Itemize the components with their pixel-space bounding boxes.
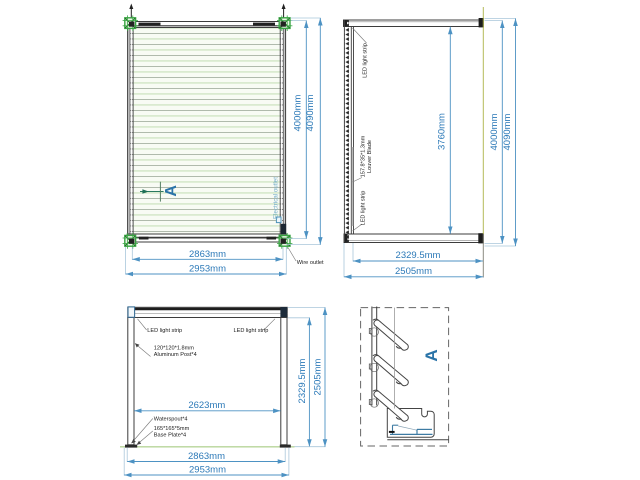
svg-text:2329.5mm: 2329.5mm	[396, 250, 441, 261]
svg-text:Base Plate*4: Base Plate*4	[154, 433, 186, 439]
svg-text:2863mm: 2863mm	[189, 249, 226, 260]
svg-text:120*120*1.8mm: 120*120*1.8mm	[154, 346, 194, 352]
svg-text:Electrical outlet: Electrical outlet	[273, 177, 280, 219]
svg-text:LED light strip: LED light strip	[147, 328, 182, 334]
svg-text:2505mm: 2505mm	[395, 266, 432, 277]
svg-text:Aluminum Post*4: Aluminum Post*4	[154, 352, 197, 358]
svg-text:2953mm: 2953mm	[189, 464, 226, 475]
svg-text:4000mm: 4000mm	[489, 113, 500, 150]
svg-text:LED light strip: LED light strip	[363, 43, 369, 78]
svg-text:157.8*35*1.3mm: 157.8*35*1.3mm	[360, 135, 366, 177]
svg-text:2953mm: 2953mm	[189, 264, 226, 275]
svg-text:Waterspout*4: Waterspout*4	[154, 416, 188, 422]
svg-text:2329.5mm: 2329.5mm	[297, 358, 308, 403]
svg-text:4090mm: 4090mm	[305, 94, 316, 131]
svg-text:2623mm: 2623mm	[188, 400, 225, 411]
svg-text:4090mm: 4090mm	[502, 113, 513, 150]
svg-text:165*165*5mm: 165*165*5mm	[154, 426, 190, 432]
svg-text:Louver Blade: Louver Blade	[367, 140, 373, 173]
svg-text:A: A	[163, 185, 180, 197]
svg-text:4000mm: 4000mm	[293, 94, 304, 131]
svg-text:LED light strip: LED light strip	[234, 328, 269, 334]
svg-text:A: A	[422, 349, 441, 361]
svg-text:LED light strip: LED light strip	[361, 191, 367, 226]
svg-text:2505mm: 2505mm	[312, 358, 323, 395]
svg-text:2863mm: 2863mm	[188, 451, 225, 462]
svg-text:3760mm: 3760mm	[437, 113, 448, 150]
svg-text:Wire outlet: Wire outlet	[297, 260, 324, 266]
